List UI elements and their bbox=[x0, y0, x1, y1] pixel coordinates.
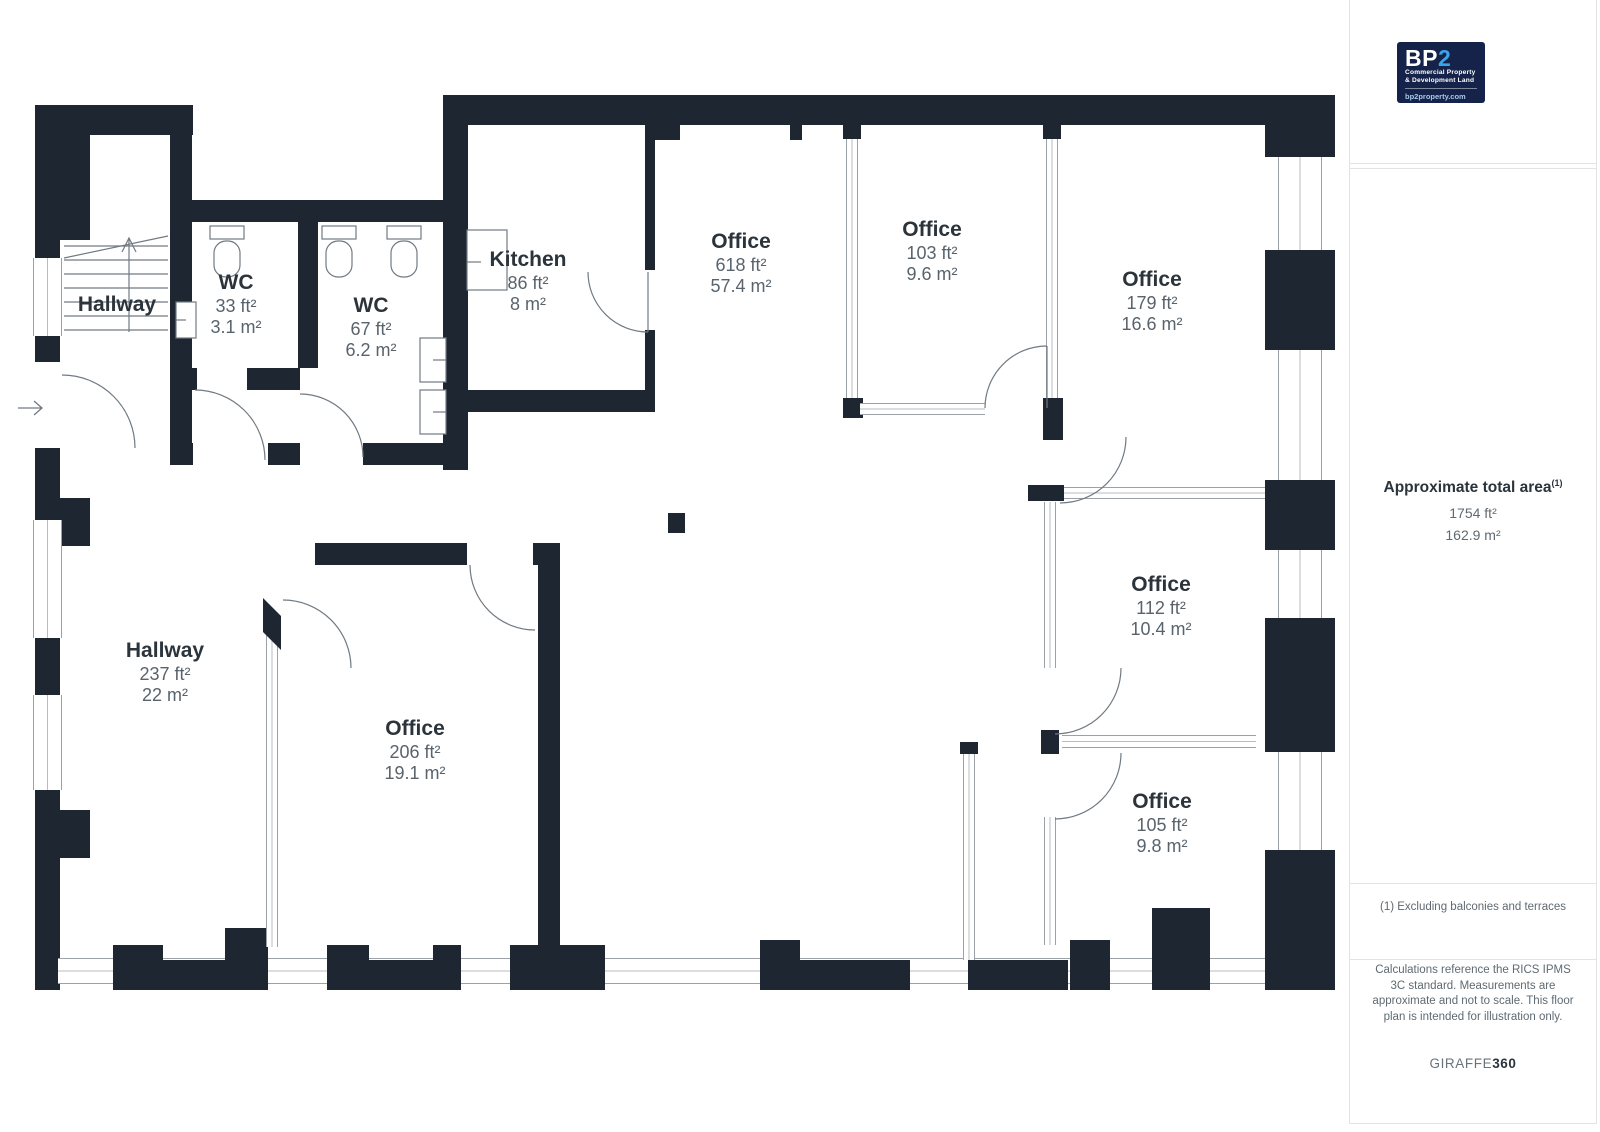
bp2-logo-wordmark: BP2 bbox=[1405, 47, 1477, 69]
room-label-office-179: Office 179 ft² 16.6 m² bbox=[1121, 267, 1182, 335]
room-name: WC bbox=[210, 270, 261, 296]
total-area-title: Approximate total area(1) bbox=[1349, 478, 1597, 497]
room-area-m: 10.4 m² bbox=[1130, 619, 1191, 640]
footnote-marker: (1) bbox=[1551, 478, 1562, 488]
room-name: Office bbox=[902, 217, 962, 243]
entry-arrow-icon bbox=[18, 401, 42, 415]
room-label-wc-small: WC 33 ft² 3.1 m² bbox=[210, 270, 261, 338]
room-label-wc-large: WC 67 ft² 6.2 m² bbox=[345, 293, 396, 361]
room-area-ft: 86 ft² bbox=[489, 273, 566, 294]
sidebar-divider bbox=[1349, 1123, 1597, 1124]
room-area-m: 9.8 m² bbox=[1132, 836, 1192, 857]
total-area-ft: 1754 ft² bbox=[1349, 505, 1597, 521]
bp2-logo-url: bp2property.com bbox=[1405, 92, 1477, 101]
total-area-m: 162.9 m² bbox=[1349, 527, 1597, 543]
room-area-m: 22 m² bbox=[126, 685, 204, 706]
room-name: Office bbox=[1132, 789, 1192, 815]
room-label-hallway-stairs: Hallway bbox=[78, 292, 156, 318]
room-label-office-618: Office 618 ft² 57.4 m² bbox=[710, 229, 771, 297]
room-label-office-206: Office 206 ft² 19.1 m² bbox=[384, 716, 445, 784]
door-arcs bbox=[62, 272, 1126, 819]
room-area-m: 8 m² bbox=[489, 294, 566, 315]
room-label-office-105: Office 105 ft² 9.8 m² bbox=[1132, 789, 1192, 857]
room-area-ft: 179 ft² bbox=[1121, 293, 1182, 314]
room-label-office-112: Office 112 ft² 10.4 m² bbox=[1130, 572, 1191, 640]
footnote: (1) Excluding balconies and terraces bbox=[1349, 901, 1597, 913]
room-area-m: 19.1 m² bbox=[384, 763, 445, 784]
room-label-hallway-237: Hallway 237 ft² 22 m² bbox=[126, 638, 204, 706]
room-area-m: 57.4 m² bbox=[710, 276, 771, 297]
room-area-ft: 105 ft² bbox=[1132, 815, 1192, 836]
room-name: Hallway bbox=[126, 638, 204, 664]
room-name: Kitchen bbox=[489, 247, 566, 273]
room-area-ft: 618 ft² bbox=[710, 255, 771, 276]
room-name: WC bbox=[345, 293, 396, 319]
room-name: Hallway bbox=[78, 292, 156, 318]
room-name: Office bbox=[384, 716, 445, 742]
floor-plan-page: Hallway WC 33 ft² 3.1 m² WC 67 ft² 6.2 m… bbox=[0, 0, 1600, 1132]
room-area-ft: 103 ft² bbox=[902, 243, 962, 264]
room-area-ft: 112 ft² bbox=[1130, 598, 1191, 619]
sidebar-divider bbox=[1349, 163, 1597, 164]
glazing-cap bbox=[263, 598, 281, 650]
bp2-logo: BP2 Commercial Property & Development La… bbox=[1397, 42, 1485, 103]
room-name: Office bbox=[1121, 267, 1182, 293]
room-area-ft: 237 ft² bbox=[126, 664, 204, 685]
sidebar-divider bbox=[1349, 883, 1597, 884]
room-label-kitchen: Kitchen 86 ft² 8 m² bbox=[489, 247, 566, 315]
plan-symbols bbox=[0, 0, 1349, 1132]
room-area-m: 6.2 m² bbox=[345, 340, 396, 361]
room-area-m: 16.6 m² bbox=[1121, 314, 1182, 335]
bp2-logo-tagline: Commercial Property bbox=[1405, 69, 1477, 77]
room-label-office-103: Office 103 ft² 9.6 m² bbox=[902, 217, 962, 285]
bp2-logo-tagline: & Development Land bbox=[1405, 77, 1477, 85]
room-area-ft: 206 ft² bbox=[384, 742, 445, 763]
room-area-m: 3.1 m² bbox=[210, 317, 261, 338]
giraffe360-credit: GIRAFFE360 bbox=[1349, 1056, 1597, 1071]
sidebar-divider bbox=[1349, 959, 1597, 960]
room-area-m: 9.6 m² bbox=[902, 264, 962, 285]
sidebar-divider bbox=[1349, 168, 1597, 169]
room-name: Office bbox=[1130, 572, 1191, 598]
logo-divider bbox=[1405, 88, 1477, 89]
room-area-ft: 67 ft² bbox=[345, 319, 396, 340]
room-area-ft: 33 ft² bbox=[210, 296, 261, 317]
room-name: Office bbox=[710, 229, 771, 255]
disclaimer-text: Calculations reference the RICS IPMS 3C … bbox=[1368, 963, 1578, 1025]
